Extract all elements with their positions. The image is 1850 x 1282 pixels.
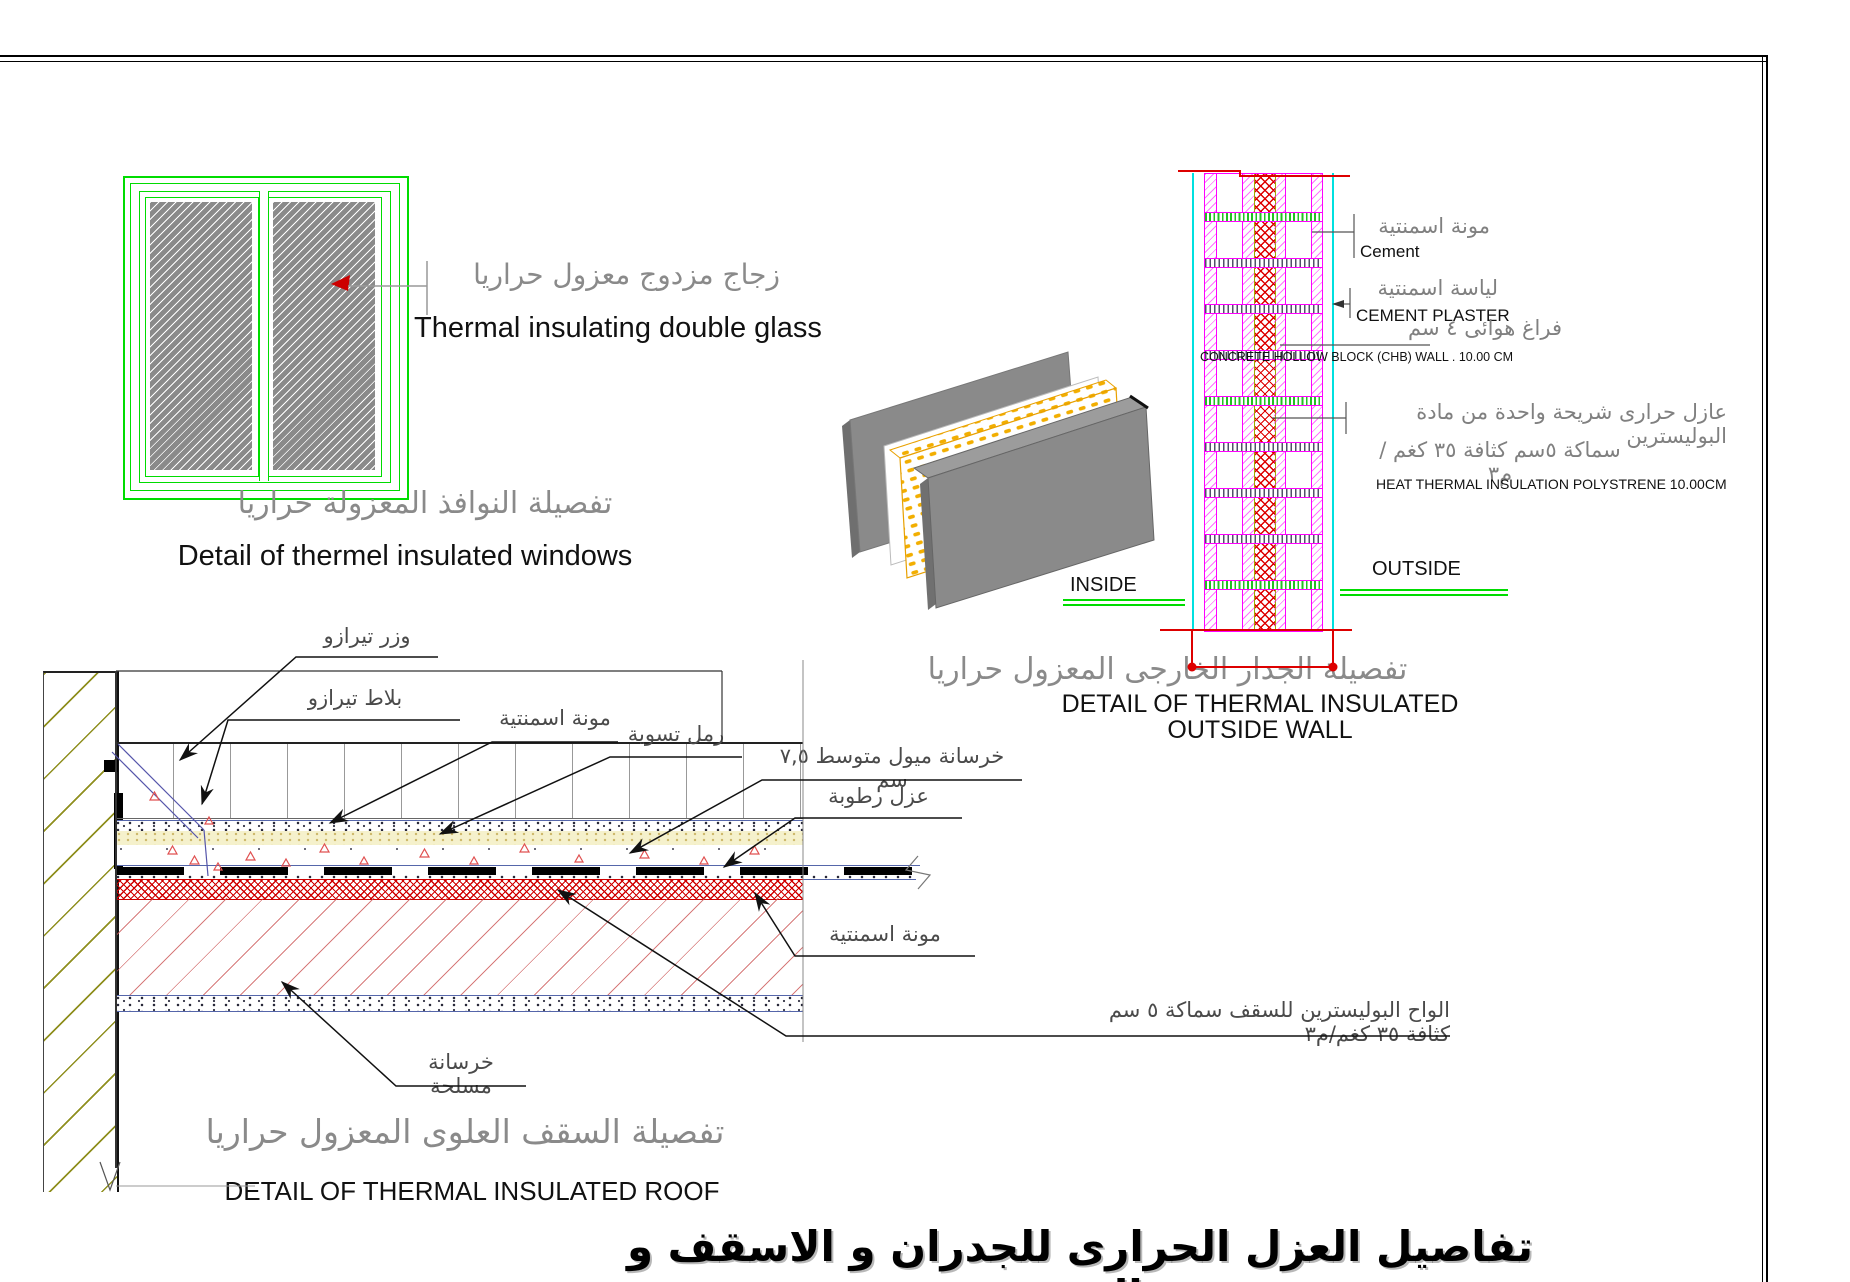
window-caption-ar: تفصيلة النوافذ المعزولة حراريا <box>200 486 650 521</box>
slope-concrete-layer <box>116 845 803 866</box>
label-cement-mortar-top: مونة اسمنتية <box>492 706 618 730</box>
wall-caption-ar: تفصيلة الجدار الخارجى المعزول حراريا <box>880 652 1455 687</box>
roof-caption-en: DETAIL OF THERMAL INSULATED ROOF <box>172 1176 772 1207</box>
window-caption-en: Detail of thermel insulated windows <box>150 540 660 573</box>
glass-label-en: Thermal insulating double glass <box>414 312 822 345</box>
frame-top-inner <box>0 61 1768 62</box>
terrazzo-tile-layer <box>116 742 803 819</box>
moisture-barrier-layer <box>116 867 916 875</box>
inside-underline-2 <box>1063 604 1185 606</box>
plaster-line-inside <box>1192 173 1194 630</box>
label-moisture-insulation: عزل رطوبة <box>795 784 962 808</box>
outside-underline-2 <box>1340 594 1508 596</box>
sandwich-panel-3d <box>842 352 1154 610</box>
label-leveling-sand: رمل تسوية <box>610 722 742 746</box>
label-reinforced-concrete: خرسانة مسلحة <box>396 1050 526 1098</box>
window-glass-left <box>150 202 252 470</box>
mortar-joint <box>1205 488 1322 498</box>
mortar-joint <box>1205 396 1322 406</box>
wall-label-plaster-ar: لياسة اسمنتية <box>1358 276 1498 300</box>
mortar-joint <box>1205 442 1322 452</box>
parapet-wall <box>43 671 119 1192</box>
wall-label-chb-en: CONCRETE HOLLOW BLOCK (CHB) WALL . 10.00… <box>1200 350 1513 364</box>
window-glass-right <box>273 202 375 470</box>
roof-caption-ar: تفصيلة السقف العلوى المعزول حراريا <box>165 1112 765 1151</box>
frame-right-inner <box>1762 55 1763 1282</box>
mortar-joint <box>1205 534 1322 544</box>
glass-label-ar: زجاج مزدوج معزول حراريا <box>460 258 780 291</box>
inside-underline-1 <box>1063 599 1185 601</box>
label-terrazzo-skirting: وزر تيرازو <box>296 624 438 648</box>
outside-underline-1 <box>1340 589 1508 591</box>
wall-label-mortar-ar: مونة اسمنتية <box>1360 214 1490 238</box>
frame-top-outer <box>0 55 1768 57</box>
mortar-joint <box>1205 304 1322 314</box>
inside-label: INSIDE <box>1070 574 1137 597</box>
label-polystyrene-boards: الواح البوليسترين للسقف سماكة ٥ سم كثافة… <box>1080 998 1450 1046</box>
sand-layer <box>116 831 803 846</box>
sheet-title: تفاصيل العزل الحرارى للجدران و الاسقف و … <box>560 1222 1600 1282</box>
mortar-joint <box>1205 580 1322 590</box>
wall-label-airgap-ar: فراغ هوائى ٤ سم <box>1392 316 1562 340</box>
slab-soffit-band <box>116 995 803 1012</box>
membrane-top-line <box>116 865 920 866</box>
outside-label: OUTSIDE <box>1372 558 1461 581</box>
label-terrazzo-tiles: بلاط تيرازو <box>250 686 460 710</box>
reinforced-concrete-slab <box>116 898 803 995</box>
polystyrene-layer <box>116 879 803 900</box>
plaster-line-outside <box>1332 173 1334 630</box>
wall-label-mortar-en: Cement <box>1360 242 1420 262</box>
cad-sheet: زجاج مزدوج معزول حراريا Thermal insulati… <box>0 0 1850 1282</box>
mortar-joint <box>1205 258 1322 268</box>
wall-label-insul-en: HEAT THERMAL INSULATION POLYSTRENE 10.00… <box>1376 476 1727 492</box>
wall-caption-en2: OUTSIDE WALL <box>1000 716 1520 745</box>
frame-right-outer <box>1766 55 1768 1282</box>
wall-caption-en1: DETAIL OF THERMAL INSULATED <box>1000 690 1520 719</box>
label-cement-mortar-bottom: مونة اسمنتية <box>795 922 975 946</box>
mortar-joint <box>1205 212 1322 222</box>
chb-wall <box>1204 173 1323 632</box>
